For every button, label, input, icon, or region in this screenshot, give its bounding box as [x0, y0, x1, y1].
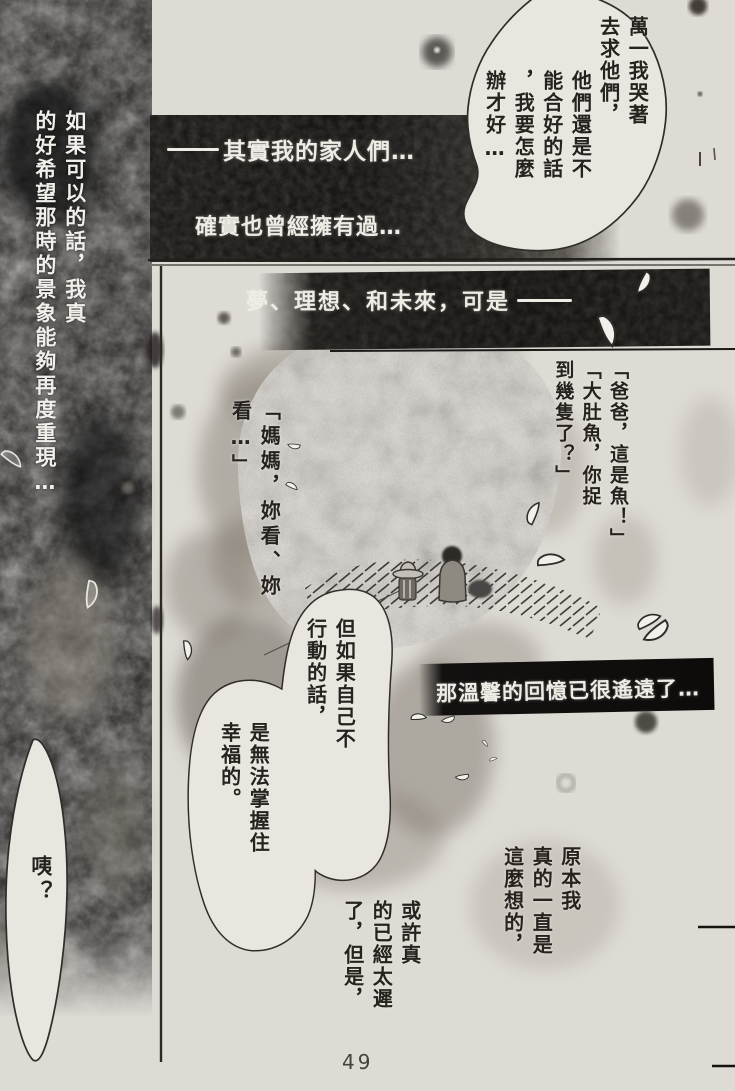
vtext-column: 「媽媽，妳看、妳	[256, 400, 282, 635]
caption-text: 確實也曾經擁有過…	[195, 209, 402, 241]
vtext-column: 的已經太遲	[368, 900, 394, 1045]
dialogue-crying-part2: 他們還是不 能合好的話 ，我要怎麼 辦才好…	[478, 70, 592, 205]
dialogue-crying-part1: 萬一我哭著 去求他們，	[592, 16, 649, 141]
vtext-column: 的好希望那時的景象能夠再度重現…	[31, 110, 58, 580]
narration-wish: 如果可以的話，我真 的好希望那時的景象能夠再度重現…	[28, 110, 88, 580]
dialogue-eh: 咦？	[24, 855, 54, 925]
vtext-column: 萬一我哭著	[624, 16, 650, 141]
caption-banner-1: 其實我的家人們…	[167, 132, 415, 166]
vtext-column: 去求他們，	[595, 16, 621, 141]
vtext-column: 了，但是，	[339, 900, 365, 1045]
vtext-column: 辦才好…	[481, 70, 507, 205]
dialogue-mama: 「媽媽，妳看、妳 看…」	[224, 400, 281, 635]
vtext-column: 行動的話，	[302, 618, 328, 778]
vtext-column: 如果可以的話，我真	[61, 110, 88, 580]
vtext-column: 這麼想的，	[499, 846, 525, 1031]
dash-line	[517, 299, 572, 302]
caption-text: 其實我的家人們…	[223, 132, 415, 166]
dash-line	[167, 148, 219, 151]
caption-text: 那溫馨的回憶已很遙遠了…	[436, 672, 701, 708]
vtext-column: 或許真	[396, 900, 422, 1045]
vtext-column: 原本我	[556, 846, 582, 1031]
dialogue-papa: 「爸爸，這是魚！」 「大肚魚，你捉 到幾隻了？」	[548, 360, 630, 565]
vtext-column: 看…」	[227, 400, 253, 635]
vtext-column: 咦？	[27, 855, 54, 925]
caption-banner-4: 那溫馨的回憶已很遙遠了…	[436, 672, 701, 708]
vtext-column: 「大肚魚，你捉	[578, 360, 602, 565]
vtext-column: 真的一直是	[528, 846, 554, 1031]
vtext-column: 幸福的。	[216, 722, 242, 932]
vtext-column: 是無法掌握住	[245, 722, 271, 932]
vtext-column: 「爸爸，這是魚！」	[606, 360, 630, 565]
page-number: 49	[342, 1050, 373, 1074]
caption-text: 夢、理想、和未來，可是	[246, 284, 510, 316]
narration-thought2: 或許真 的已經太遲 了，但是，	[336, 900, 422, 1045]
vtext-column: 但如果自己不	[331, 618, 357, 778]
dialogue-action: 但如果自己不 行動的話，	[299, 618, 356, 778]
manga-page: 如果可以的話，我真 的好希望那時的景象能夠再度重現… 萬一我哭著 去求他們， 他…	[0, 0, 735, 1091]
caption-banner-3: 夢、理想、和未來，可是	[246, 284, 572, 316]
vtext-column: 他們還是不	[567, 70, 593, 205]
caption-banner-2: 確實也曾經擁有過…	[195, 209, 402, 241]
narration-thought1: 原本我 真的一直是 這麼想的，	[496, 846, 582, 1031]
vtext-column: 到幾隻了？」	[551, 360, 575, 565]
vtext-column: 能合好的話	[538, 70, 564, 205]
vtext-column: ，我要怎麼	[510, 70, 536, 205]
dialogue-happiness: 是無法掌握住 幸福的。	[213, 722, 270, 932]
